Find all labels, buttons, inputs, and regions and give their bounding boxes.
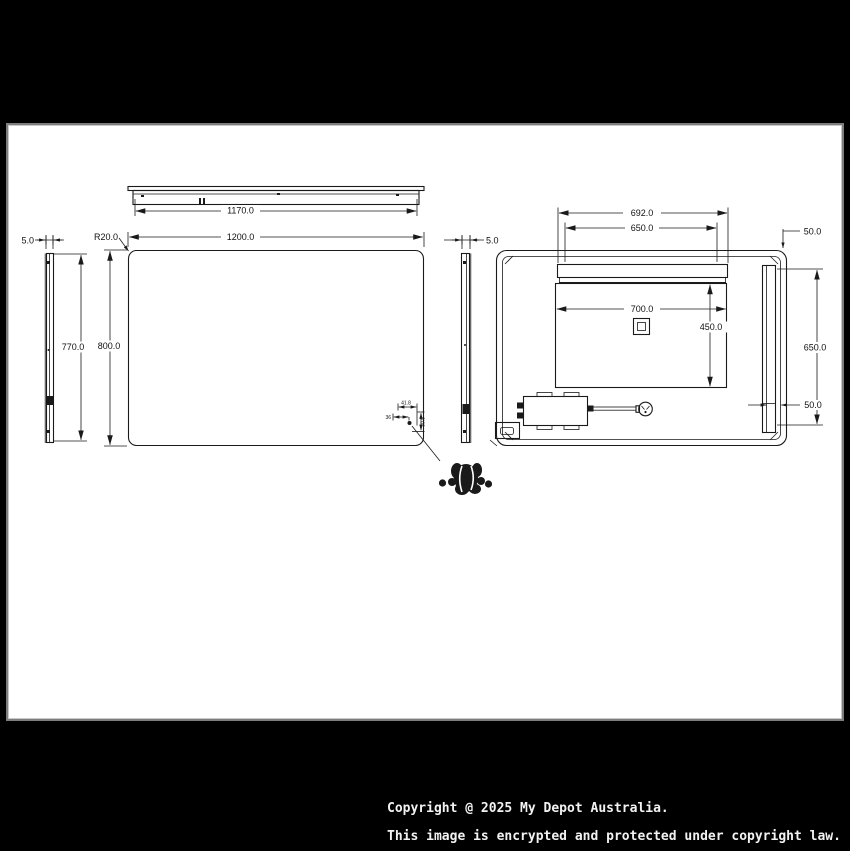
copyright-line2: This image is encrypted and protected un… [387,823,841,851]
side-left-switch [47,396,54,405]
dim-top-view-width: 1170.0 [135,199,417,216]
dim-demister-width: 700.0 [557,304,726,315]
technical-drawing: 1170.0 1200.0 R20.0 800.0 [0,0,850,850]
sensor-offset-left-label: 36 [385,415,391,421]
top-offset-label: 50.0 [804,227,822,237]
dim-front-radius: R20.0 [94,232,129,251]
demister-pad [556,284,727,388]
rail-offset-label: 50.0 [804,400,822,410]
hanger-bar [558,265,728,284]
top-view [128,187,424,205]
callout-left-dot [439,479,446,486]
dim-side-left-thickness: 5.0 [21,235,64,249]
sensor-offset-y-label: 30.8 [421,417,427,427]
hanging-rail [763,266,776,433]
led-driver [517,393,594,430]
hanger-outer-label: 692.0 [631,208,654,218]
copyright-line1: Copyright @ 2025 My Depot Australia. [387,795,841,823]
front-view [129,251,424,446]
corner-connector [490,423,520,447]
rail-height-label: 650.0 [804,343,827,353]
side-right-switch [463,404,470,414]
dim-hanger-inner: 650.0 [565,223,717,263]
dim-hanger-outer: 692.0 [558,208,728,264]
image-canvas: 1170.0 1200.0 R20.0 800.0 [0,0,850,850]
top-view-clip-detail [199,198,201,204]
corner-radius-label: R20.0 [94,232,118,242]
dim-front-width: 1200.0 [128,232,424,248]
side-view-left [45,254,53,444]
top-view-width-label: 1170.0 [227,206,254,216]
power-cable [593,407,636,410]
hanger-inner-label: 650.0 [631,223,654,233]
touch-sensor-dot [408,421,412,425]
callout-blob [448,463,485,495]
dim-side-right-thickness: 5.0 [444,235,499,249]
front-width-label: 1200.0 [227,232,255,242]
power-plug [636,402,652,416]
callout-right-dot [485,480,492,487]
side-left-thickness-label: 5.0 [21,236,34,246]
dim-top-offset: 50.0 [783,227,824,249]
sensor-callout-graphic [439,463,492,495]
side-right-thickness-label: 5.0 [486,236,499,246]
dim-demister-height: 450.0 [694,285,728,386]
side-left-height-label: 770.0 [62,342,85,352]
sensor-offset-x-label: 41.8 [401,401,411,407]
copyright-watermark: Copyright @ 2025 My Depot Australia. Thi… [387,795,841,851]
junction-box-symbol [634,319,650,335]
dim-side-left-height: 770.0 [54,254,90,441]
side-view-right [462,254,471,444]
demister-height-label: 450.0 [700,322,723,332]
touch-sensor-detail: 41.8 36 30.8 [385,401,440,462]
dim-front-height: 800.0 [92,250,127,446]
front-height-label: 800.0 [98,341,121,351]
demister-width-label: 700.0 [631,304,654,314]
back-view [490,251,787,447]
